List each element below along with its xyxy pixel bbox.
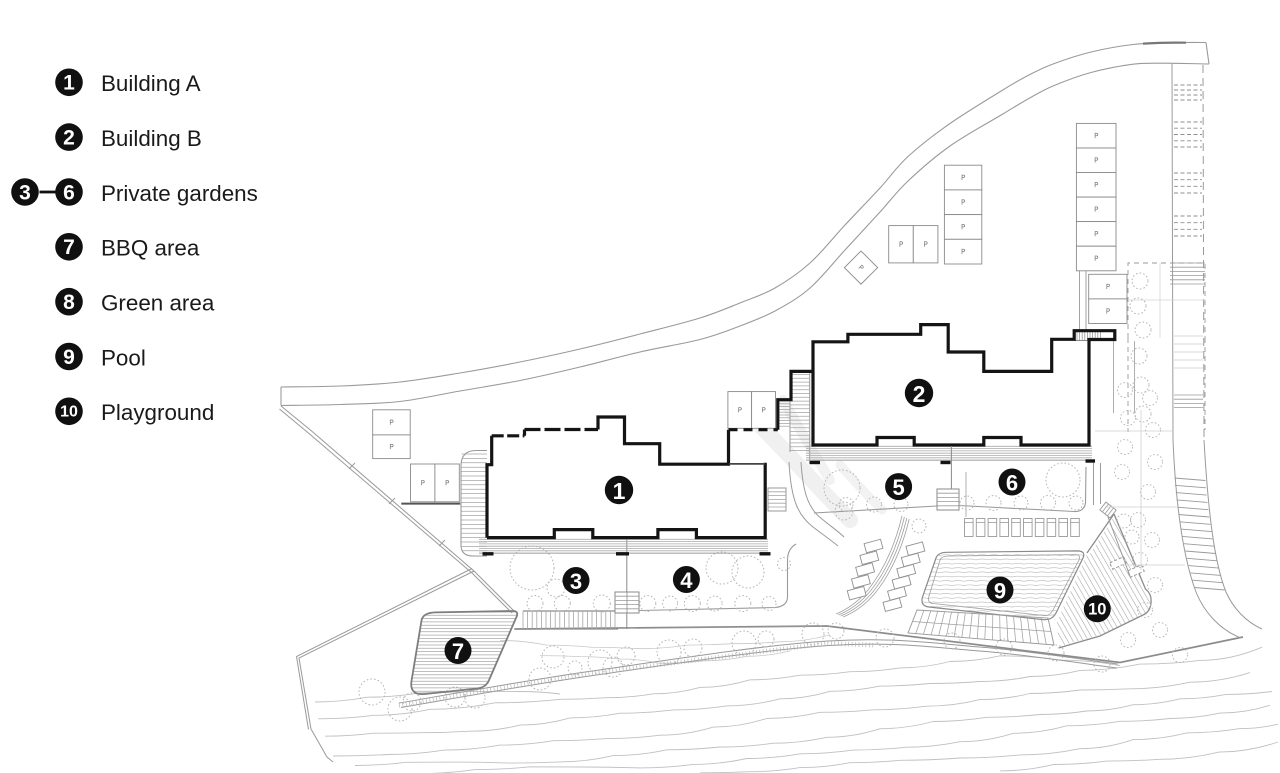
svg-text:Building B: Building B	[101, 126, 202, 151]
svg-text:3: 3	[570, 569, 582, 594]
svg-text:9: 9	[63, 346, 75, 369]
svg-text:1: 1	[63, 72, 75, 95]
svg-text:5: 5	[892, 475, 904, 500]
svg-text:6: 6	[1006, 470, 1018, 495]
svg-text:BBQ area: BBQ area	[101, 236, 200, 261]
svg-text:7: 7	[452, 639, 464, 664]
svg-text:1: 1	[613, 478, 626, 504]
svg-text:6: 6	[63, 181, 75, 204]
svg-text:8: 8	[63, 291, 75, 314]
svg-text:2: 2	[63, 126, 75, 149]
svg-text:7: 7	[63, 236, 75, 259]
svg-text:Playground: Playground	[101, 400, 214, 425]
svg-text:10: 10	[60, 403, 78, 420]
svg-text:Private gardens: Private gardens	[101, 181, 258, 206]
svg-text:9: 9	[994, 578, 1006, 603]
svg-text:4: 4	[680, 568, 693, 593]
svg-text:2: 2	[913, 381, 926, 407]
svg-text:Green area: Green area	[101, 291, 215, 316]
svg-text:10: 10	[1088, 600, 1106, 618]
svg-text:Building A: Building A	[101, 71, 201, 96]
svg-text:3: 3	[19, 181, 31, 204]
svg-text:Pool: Pool	[101, 345, 146, 370]
